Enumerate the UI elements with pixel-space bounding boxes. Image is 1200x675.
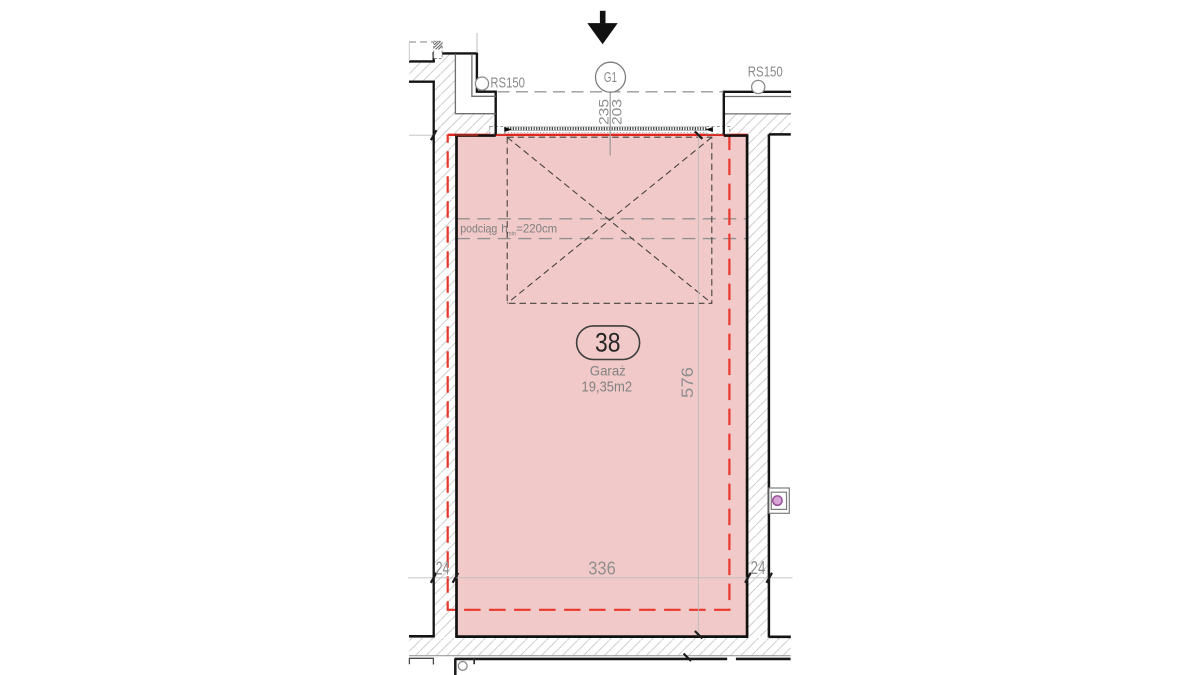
- svg-text:336: 336: [588, 557, 616, 578]
- svg-text:podciąg: podciąg: [460, 222, 497, 235]
- svg-text:24: 24: [436, 557, 450, 578]
- svg-text:min: min: [507, 231, 516, 238]
- svg-text:576: 576: [678, 367, 697, 398]
- svg-text:RS150: RS150: [490, 75, 525, 92]
- svg-text:19,35m2: 19,35m2: [582, 378, 633, 395]
- svg-text:203: 203: [608, 99, 624, 125]
- svg-text:24: 24: [751, 557, 766, 578]
- svg-text:38: 38: [595, 328, 621, 358]
- svg-text:RS150: RS150: [748, 63, 783, 80]
- svg-text:Garaż: Garaż: [590, 363, 626, 379]
- svg-text:G1: G1: [604, 70, 617, 86]
- svg-text:=220cm: =220cm: [516, 222, 557, 235]
